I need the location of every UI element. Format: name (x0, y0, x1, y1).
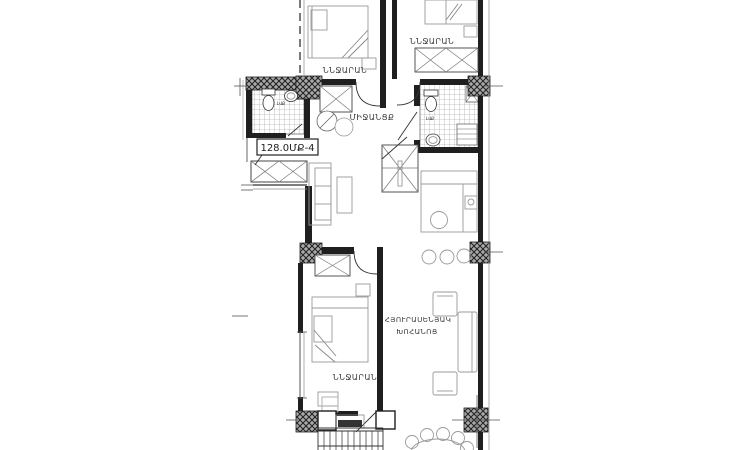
living-room-label-line2: ԽՈՀԱՆՈՑ (396, 327, 437, 336)
sink-left (285, 91, 298, 102)
sofa-left (309, 163, 331, 225)
bedroom-bottom-label: ՆՆՋԱՐԱՆ (333, 373, 377, 382)
wardrobe-corridor-top (320, 86, 352, 112)
balcony-railing (318, 428, 383, 450)
wardrobe-bedroom-bottom (315, 255, 350, 276)
toilet-right (424, 90, 438, 112)
corridor-washer (317, 111, 353, 136)
bar-stools (422, 249, 471, 264)
bed-bottom (312, 284, 370, 406)
apartment-area-label: 128.0ՄՔ-4 (260, 143, 314, 154)
toilet-left (262, 89, 275, 111)
dining-set (406, 428, 474, 450)
bathroom-left-label: ԼՎՔ (277, 101, 285, 106)
bedroom-top-left-label: ՆՆՋԱՐԱՆ (323, 66, 367, 75)
balcony (318, 411, 395, 450)
balcony-post-right (376, 411, 395, 429)
wardrobe-bedroom-top-right (415, 48, 478, 72)
ac-unit (322, 397, 338, 412)
floor-plan-drawing: 128.0ՄՔ-4 ՆՆՋԱՐԱՆ ՆՆՋԱՐԱՆ ՄԻՋԱՆՑՔ ՀՅՈՒՐԱ… (0, 0, 730, 450)
sink-right (426, 134, 440, 146)
floor-plan-page: 128.0ՄՔ-4 ՆՆՋԱՐԱՆ ՆՆՋԱՐԱՆ ՄԻՋԱՆՑՔ ՀՅՈՒՐԱ… (0, 0, 730, 450)
wardrobe-corridor-bottom (382, 145, 418, 192)
sofa-group-right (433, 292, 477, 395)
coffee-table (337, 177, 352, 213)
bed-top-left (308, 6, 376, 69)
living-room-label-line1: ՀՅՈՒՐԱՍԵՆՅԱԿ (385, 315, 452, 324)
bedroom-top-right-label: ՆՆՋԱՐԱՆ (410, 37, 454, 46)
bathroom-right-label: ԼՎՔ (426, 116, 434, 121)
kitchen-counter (421, 171, 477, 232)
bed-top-right (425, 0, 477, 37)
balcony-bench (338, 420, 362, 427)
balcony-post-left (318, 411, 336, 430)
corridor-label: ՄԻՋԱՆՑՔ (350, 113, 395, 122)
